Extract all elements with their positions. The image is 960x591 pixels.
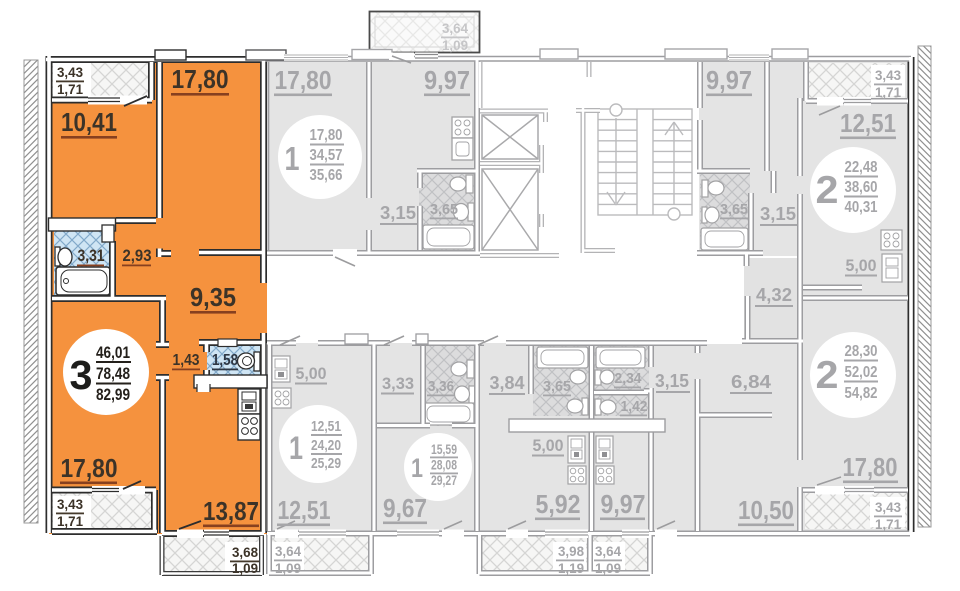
svg-text:22,48: 22,48 (845, 159, 878, 176)
svg-text:3,43: 3,43 (57, 64, 83, 80)
svg-text:17,80: 17,80 (843, 452, 898, 482)
svg-text:3,43: 3,43 (875, 499, 901, 515)
svg-text:82,99: 82,99 (96, 385, 130, 404)
svg-text:17,80: 17,80 (61, 453, 118, 483)
svg-text:24,20: 24,20 (311, 437, 341, 454)
svg-text:28,30: 28,30 (845, 343, 878, 360)
svg-text:1: 1 (411, 453, 423, 483)
svg-text:3,43: 3,43 (57, 496, 83, 512)
svg-text:3,64: 3,64 (442, 20, 468, 36)
svg-text:78,48: 78,48 (96, 364, 130, 383)
svg-text:1,71: 1,71 (57, 81, 83, 97)
svg-text:3,65: 3,65 (720, 201, 748, 218)
svg-text:1: 1 (289, 430, 303, 466)
svg-text:3,64: 3,64 (595, 543, 621, 559)
svg-text:1,09: 1,09 (595, 560, 621, 576)
svg-text:3,33: 3,33 (382, 374, 414, 393)
svg-text:54,82: 54,82 (845, 385, 878, 402)
svg-text:17,80: 17,80 (310, 127, 343, 144)
svg-text:10,50: 10,50 (738, 495, 794, 525)
svg-text:3,98: 3,98 (558, 543, 584, 559)
svg-text:1,09: 1,09 (442, 37, 468, 53)
svg-text:40,31: 40,31 (845, 199, 878, 216)
svg-text:29,27: 29,27 (431, 473, 457, 488)
svg-text:12,51: 12,51 (278, 495, 331, 525)
svg-text:3,15: 3,15 (760, 204, 796, 224)
svg-text:5,92: 5,92 (536, 489, 581, 519)
svg-text:12,51: 12,51 (311, 418, 341, 435)
svg-text:1,09: 1,09 (232, 560, 258, 576)
svg-text:1,71: 1,71 (57, 513, 83, 529)
svg-text:9,67: 9,67 (383, 493, 427, 523)
svg-text:12,51: 12,51 (840, 108, 896, 138)
svg-text:52,02: 52,02 (845, 364, 878, 381)
svg-text:1: 1 (285, 140, 300, 177)
svg-text:1,42: 1,42 (621, 398, 648, 415)
svg-text:1,71: 1,71 (875, 516, 901, 532)
svg-text:13,87: 13,87 (203, 496, 259, 526)
svg-text:3: 3 (70, 352, 93, 398)
svg-text:5,00: 5,00 (846, 256, 877, 275)
svg-text:3,84: 3,84 (490, 373, 525, 393)
svg-text:3,65: 3,65 (543, 378, 571, 395)
svg-text:4,32: 4,32 (756, 285, 792, 305)
svg-text:2: 2 (816, 169, 839, 212)
svg-text:9,97: 9,97 (601, 489, 646, 519)
svg-text:2,34: 2,34 (615, 370, 643, 387)
svg-text:17,80: 17,80 (275, 65, 332, 95)
svg-text:28,08: 28,08 (431, 458, 457, 473)
svg-text:3,68: 3,68 (232, 544, 258, 560)
svg-text:1,58: 1,58 (212, 352, 238, 369)
svg-text:46,01: 46,01 (96, 343, 130, 362)
svg-text:9,97: 9,97 (706, 65, 752, 95)
svg-text:3,43: 3,43 (875, 67, 901, 83)
svg-text:5,00: 5,00 (533, 436, 564, 455)
svg-text:3,31: 3,31 (78, 246, 105, 265)
svg-text:3,15: 3,15 (655, 371, 689, 391)
svg-text:3,65: 3,65 (430, 201, 458, 218)
svg-text:17,80: 17,80 (172, 64, 229, 94)
svg-text:3,15: 3,15 (380, 203, 416, 223)
svg-text:2: 2 (816, 354, 839, 397)
svg-text:35,66: 35,66 (310, 167, 343, 184)
svg-text:1,09: 1,09 (275, 560, 301, 576)
svg-text:6,84: 6,84 (731, 372, 771, 392)
svg-text:9,35: 9,35 (190, 282, 236, 312)
svg-text:2,93: 2,93 (123, 246, 152, 265)
svg-text:10,41: 10,41 (61, 107, 117, 137)
svg-text:1,43: 1,43 (173, 352, 200, 369)
svg-text:9,97: 9,97 (424, 65, 470, 95)
svg-text:1,71: 1,71 (875, 84, 901, 100)
svg-text:38,60: 38,60 (845, 179, 878, 196)
svg-text:3,36: 3,36 (428, 378, 454, 395)
svg-text:1,19: 1,19 (558, 560, 584, 576)
svg-text:5,00: 5,00 (296, 364, 327, 383)
svg-text:3,64: 3,64 (275, 543, 301, 559)
svg-text:15,59: 15,59 (431, 442, 457, 457)
svg-text:25,29: 25,29 (311, 455, 341, 472)
svg-text:34,57: 34,57 (310, 147, 343, 164)
